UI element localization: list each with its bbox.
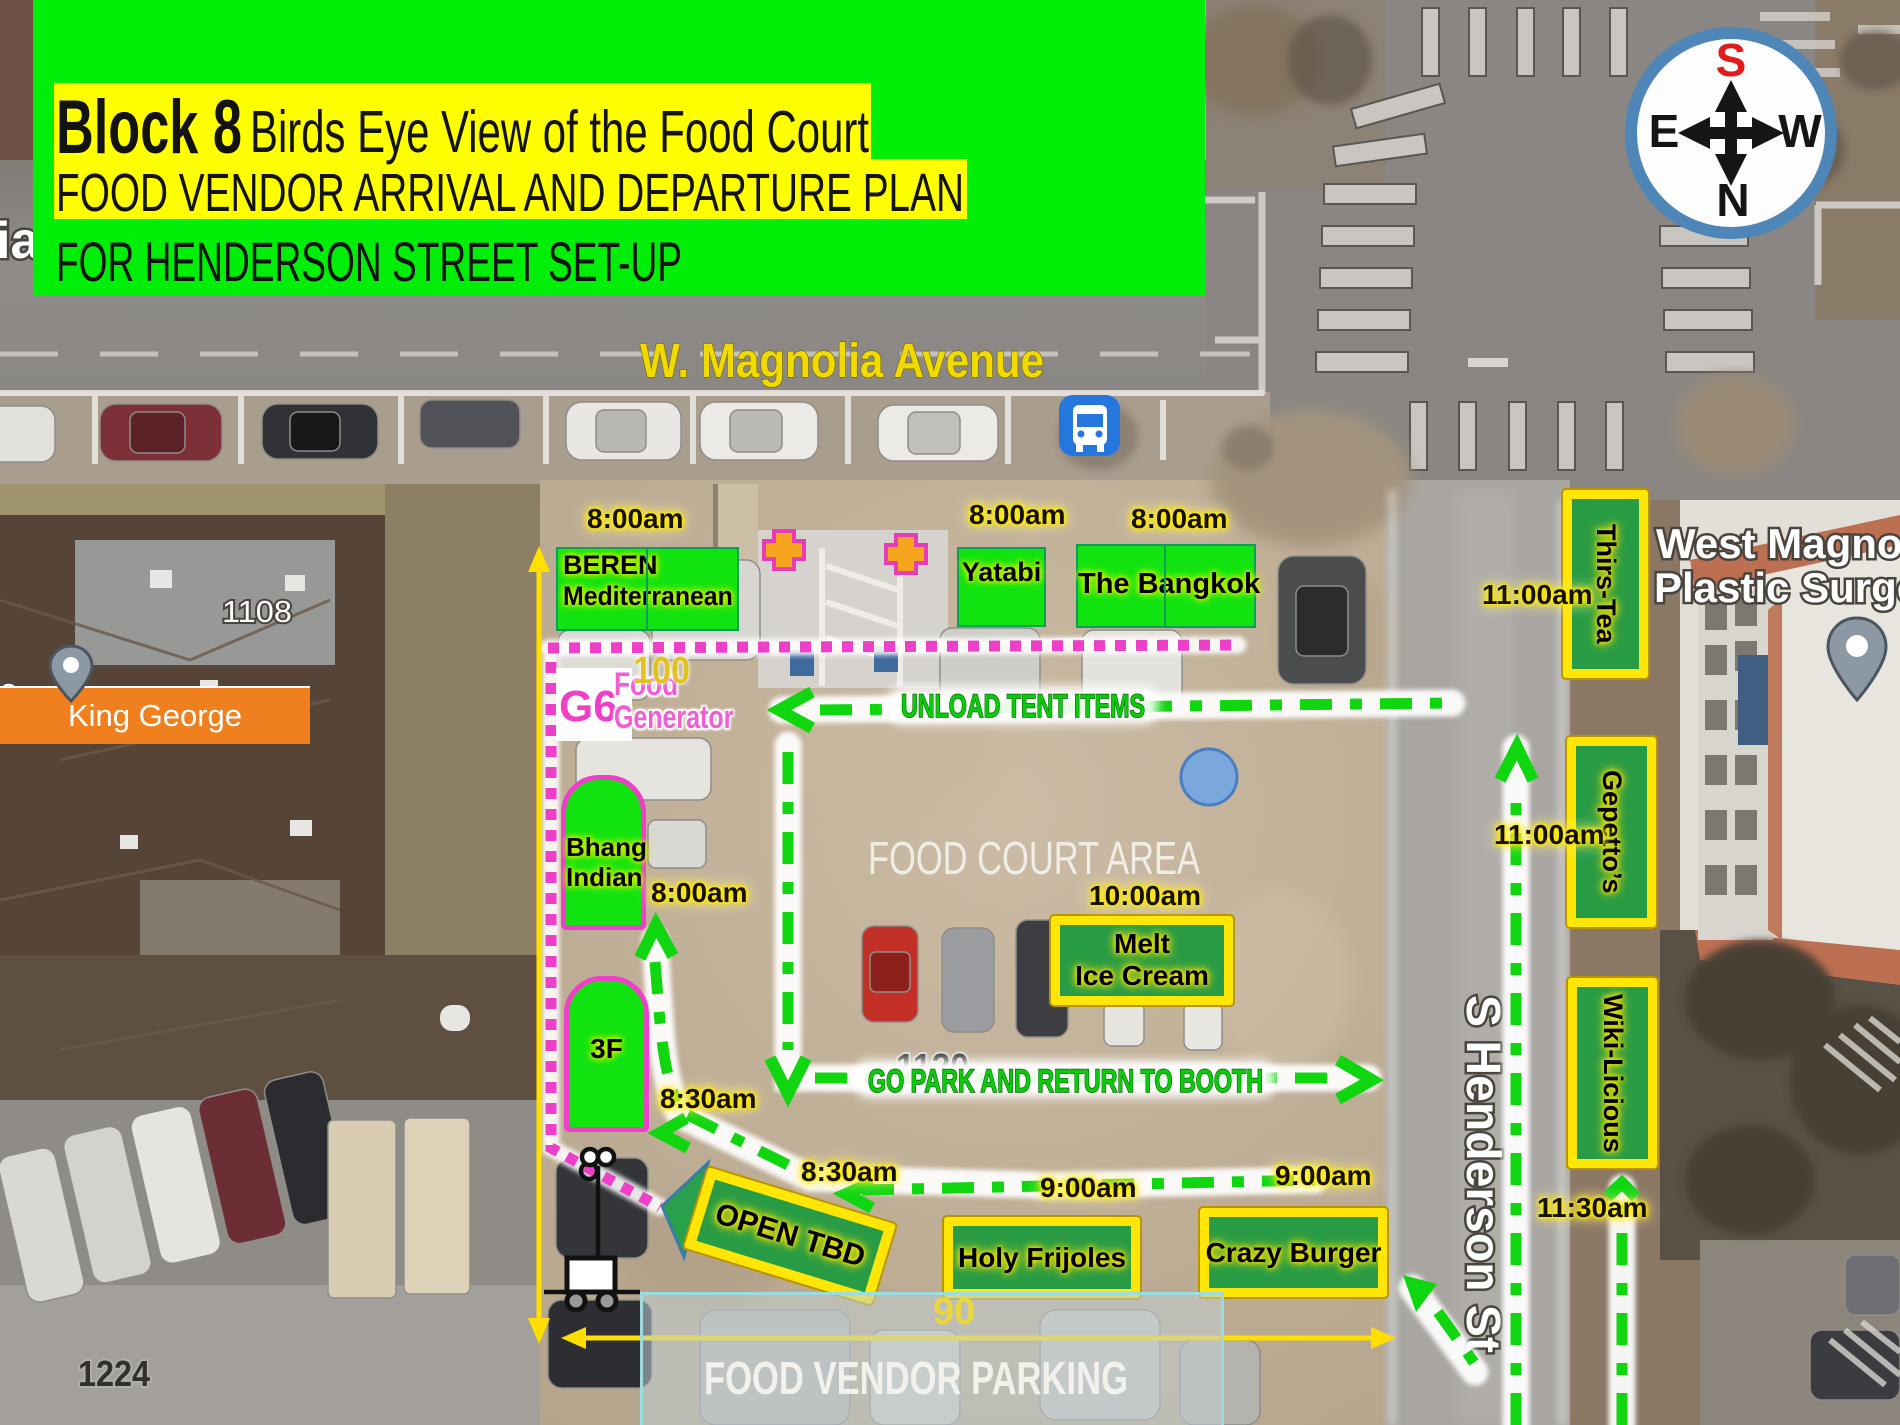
svg-text:FOOD VENDOR ARRIVAL AND DEPART: FOOD VENDOR ARRIVAL AND DEPARTURE PLAN [56, 163, 964, 223]
svg-text:Block 8: Block 8 [56, 85, 242, 170]
svg-text:GO PARK AND RETURN TO BOOTH: GO PARK AND RETURN TO BOOTH [868, 1063, 1263, 1099]
svg-text:FOOD VENDOR PARKING: FOOD VENDOR PARKING [704, 1352, 1128, 1404]
svg-text:FOR HENDERSON STREET SET-UP: FOR HENDERSON STREET SET-UP [56, 230, 682, 293]
svg-text:UNLOAD TENT ITEMS: UNLOAD TENT ITEMS [901, 688, 1145, 724]
svg-text:Birds Eye View of the Food Cou: Birds Eye View of the Food Court [250, 99, 869, 165]
svg-text:90: 90 [933, 1291, 975, 1333]
